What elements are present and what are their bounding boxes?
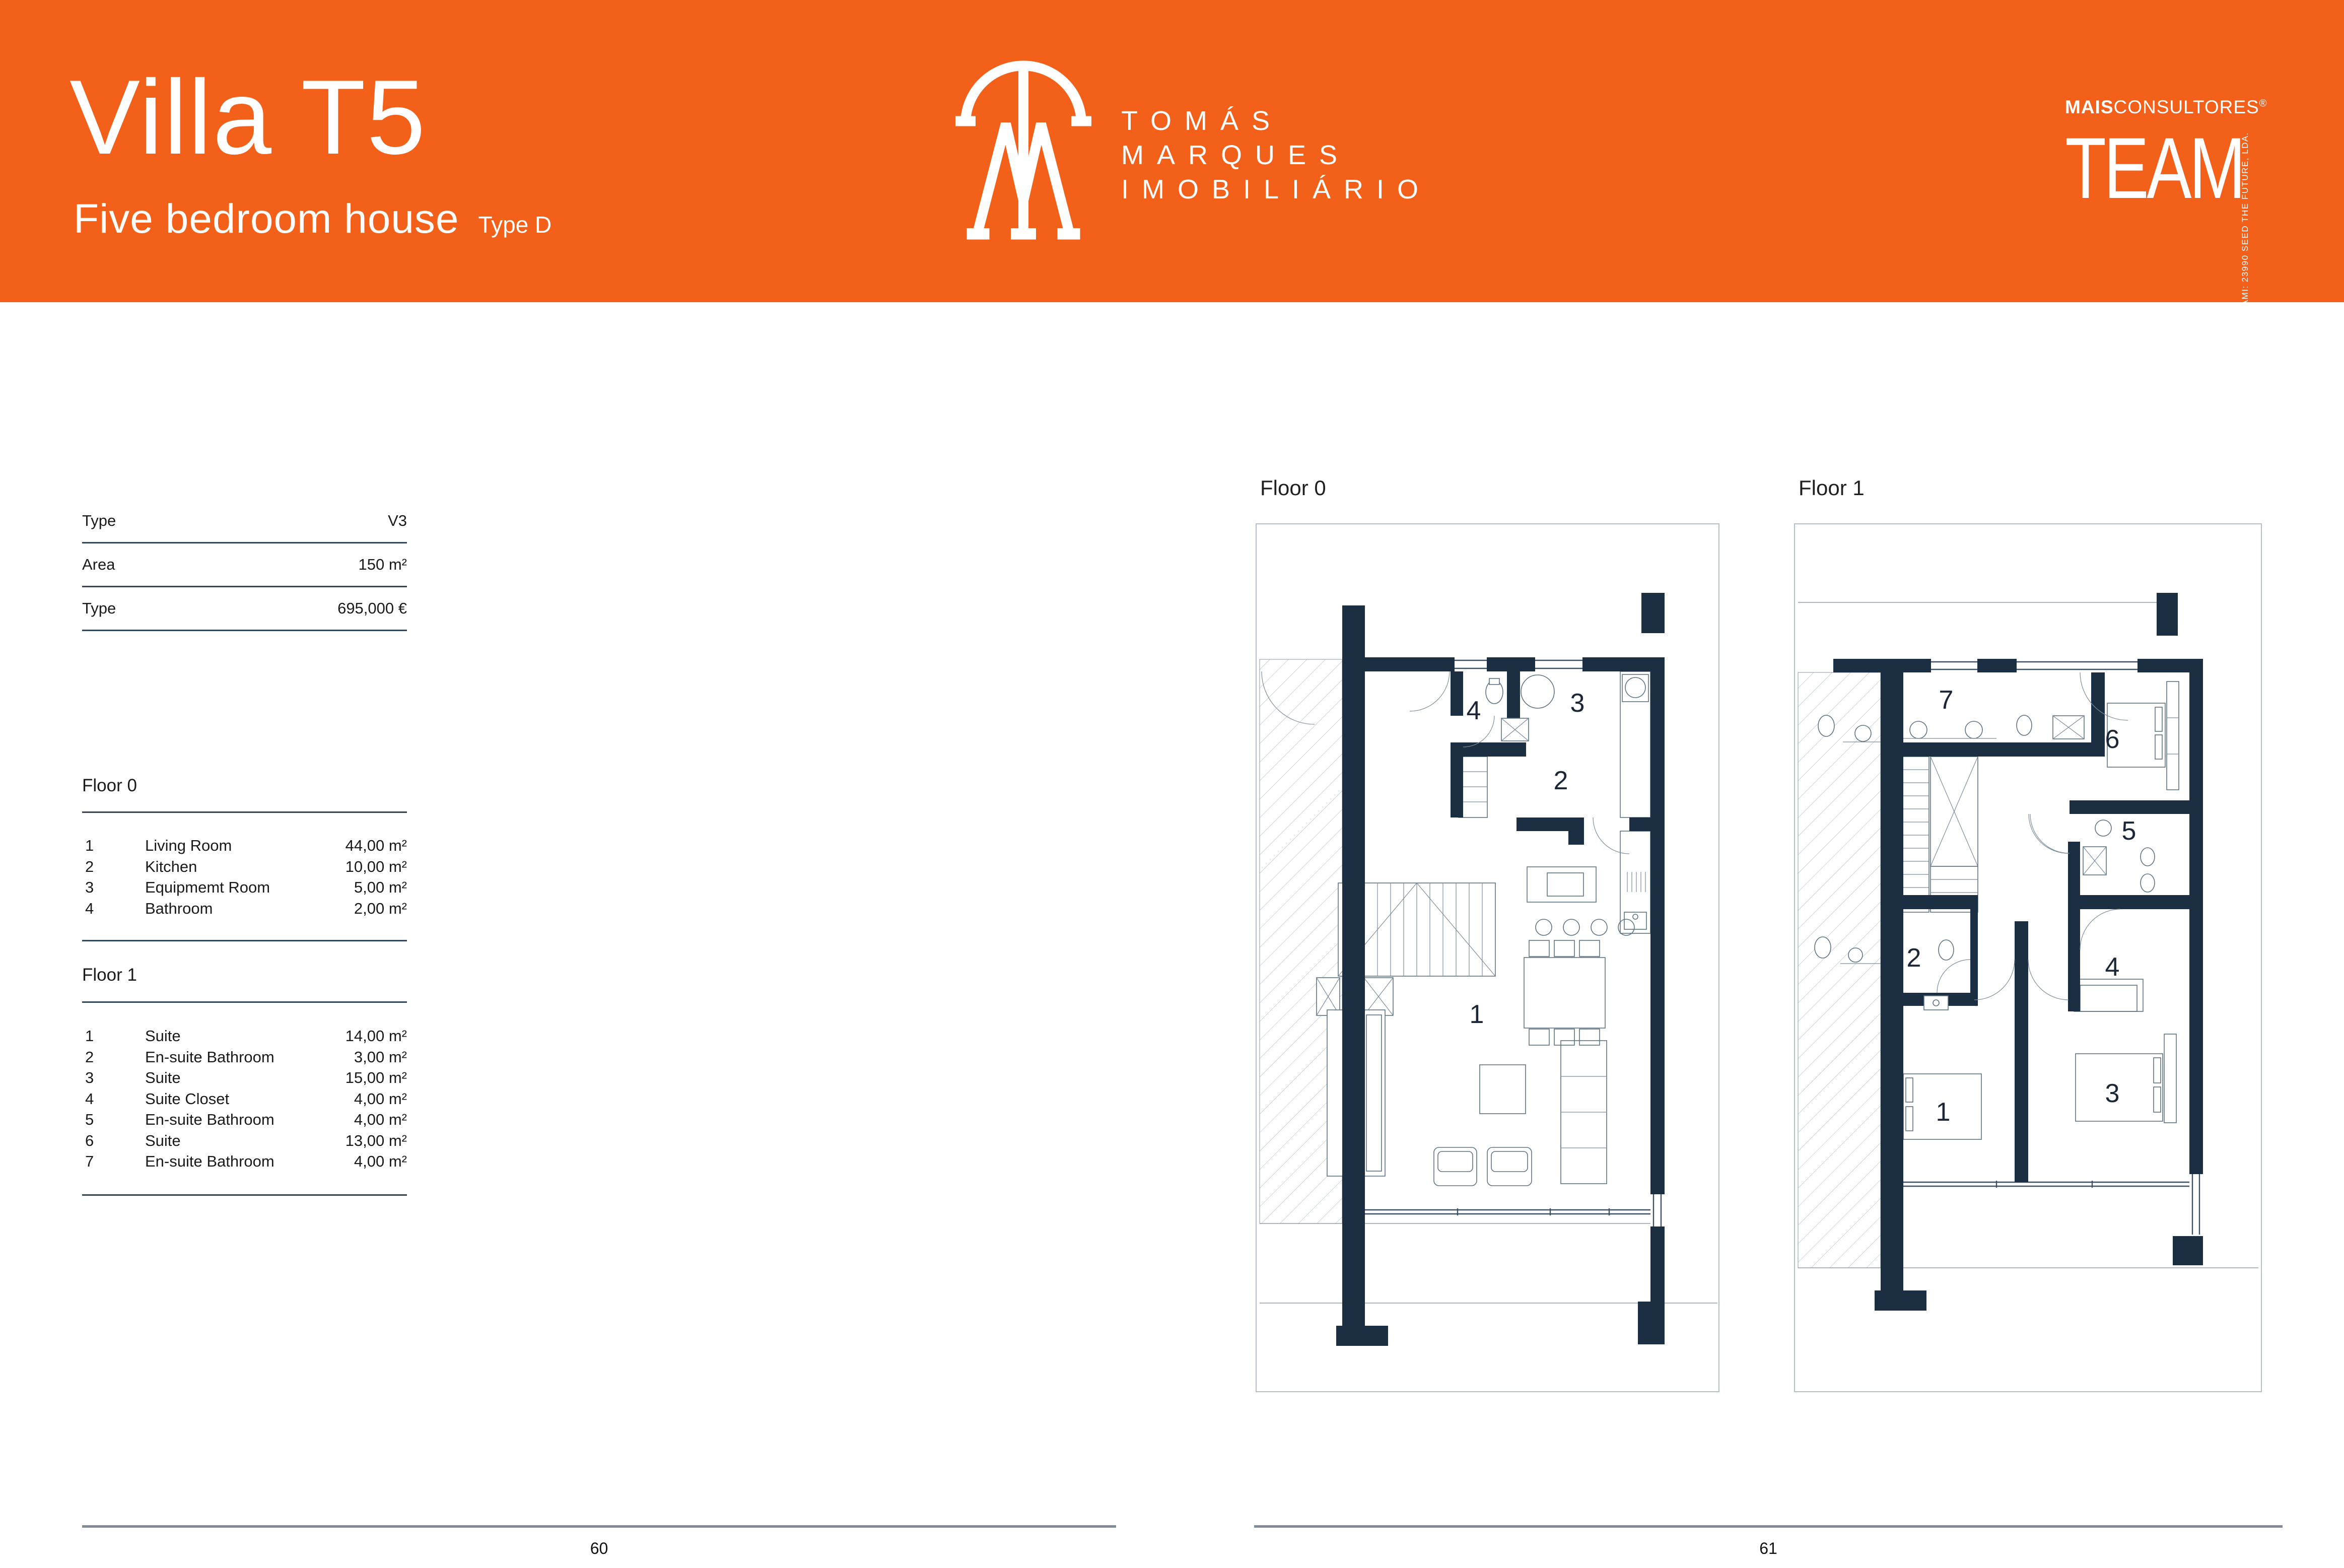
room-area: 2,00 m² (354, 898, 407, 919)
room-area: 15,00 m² (346, 1067, 407, 1088)
list-item: 1Suite14,00 m² (82, 1026, 407, 1047)
team-logo-topline: MAISCONSULTORES® (2065, 97, 2242, 118)
divider (82, 1194, 407, 1196)
floor0-plan: 1 2 3 4 (1256, 523, 1719, 1392)
room-name: En-suite Bathroom (145, 1047, 354, 1068)
plan-room-label: 4 (2105, 952, 2120, 982)
room-area: 13,00 m² (346, 1130, 407, 1151)
page-number-right: 61 (1254, 1539, 2283, 1558)
team-logo-word: TEAM (2065, 125, 2203, 212)
tm-monogram-icon (948, 44, 1099, 261)
list-item: 6Suite13,00 m² (82, 1130, 407, 1151)
plan-room-label: 2 (1554, 766, 1568, 796)
section-title-floor0: Floor 0 (82, 776, 137, 796)
section-title-floor1: Floor 1 (82, 965, 137, 985)
team-logo-side-text: AMI: 23990 SEED THE FUTURE, LDA. (2240, 132, 2250, 306)
table-row: Area 150 m² (82, 543, 407, 587)
list-item: 5En-suite Bathroom4,00 m² (82, 1109, 407, 1130)
room-name: Kitchen (145, 856, 346, 877)
floor0-plan-drawing (1257, 524, 1720, 1393)
page-title: Villa T5 (70, 64, 427, 170)
team-logo-suffix: CONSULTORES (2114, 97, 2259, 117)
subtitle-row: Five bedroom house Type D (74, 195, 551, 243)
room-name: Bathroom (145, 898, 354, 919)
list-item: 2Kitchen10,00 m² (82, 856, 407, 877)
room-name: Suite (145, 1130, 346, 1151)
list-item: 3Suite15,00 m² (82, 1067, 407, 1088)
room-name: Suite Closet (145, 1088, 354, 1110)
info-value: 150 m² (359, 556, 407, 574)
footer-rule-right (1254, 1525, 2283, 1528)
info-label: Area (82, 556, 115, 574)
plan-room-label: 5 (2122, 816, 2136, 846)
room-name: Living Room (145, 835, 346, 856)
room-area: 44,00 m² (346, 835, 407, 856)
room-area: 10,00 m² (346, 856, 407, 877)
page-number-left: 60 (82, 1539, 1116, 1558)
room-area: 4,00 m² (354, 1151, 407, 1172)
list-item: 2En-suite Bathroom3,00 m² (82, 1047, 407, 1068)
room-number: 3 (82, 1067, 145, 1088)
plan-room-label: 4 (1467, 696, 1481, 726)
brand-name-line2: MARQUES (1121, 138, 1431, 172)
floor1-plan: 1 2 3 4 5 6 7 (1794, 523, 2262, 1392)
room-name: Suite (145, 1067, 346, 1088)
brand-name-line1: TOMÁS (1121, 104, 1431, 138)
room-number: 2 (82, 856, 145, 877)
room-number: 3 (82, 877, 145, 898)
list-item: 7En-suite Bathroom4,00 m² (82, 1151, 407, 1172)
info-label: Type (82, 512, 116, 530)
room-area: 4,00 m² (354, 1109, 407, 1130)
plan-room-label: 2 (1907, 943, 1921, 973)
room-name: Suite (145, 1026, 346, 1047)
type-tag: Type D (478, 211, 552, 238)
floor1-plan-drawing (1795, 524, 2263, 1393)
brand-name-line3: IMOBILIÁRIO (1121, 172, 1431, 207)
table-row: Type 695,000 € (82, 587, 407, 631)
team-logo-prefix: MAIS (2065, 97, 2114, 117)
divider (82, 1001, 407, 1003)
plan-room-label: 3 (2105, 1078, 2120, 1109)
brand-name: TOMÁS MARQUES IMOBILIÁRIO (1121, 104, 1431, 207)
room-name: En-suite Bathroom (145, 1151, 354, 1172)
plan-room-label: 7 (1939, 685, 1954, 715)
room-number: 1 (82, 835, 145, 856)
room-number: 1 (82, 1026, 145, 1047)
divider (82, 811, 407, 813)
table-row: Type V3 (82, 500, 407, 543)
footer-rule-left (82, 1525, 1116, 1528)
room-number: 7 (82, 1151, 145, 1172)
page-subtitle: Five bedroom house (74, 195, 459, 243)
room-name: Equipmemt Room (145, 877, 354, 898)
room-number: 5 (82, 1109, 145, 1130)
room-number: 4 (82, 898, 145, 919)
header-band: Villa T5 Five bedroom house Type D TOMÁS… (0, 0, 2344, 302)
info-table: Type V3 Area 150 m² Type 695,000 € (82, 500, 407, 631)
list-item: 4Bathroom2,00 m² (82, 898, 407, 919)
team-logo: MAISCONSULTORES® TEAM AMI: 23990 SEED TH… (2065, 97, 2242, 212)
info-value: 695,000 € (337, 599, 407, 618)
plan-room-label: 1 (1936, 1097, 1951, 1127)
divider (82, 940, 407, 941)
room-area: 14,00 m² (346, 1026, 407, 1047)
room-number: 4 (82, 1088, 145, 1110)
floor1-room-list: 1Suite14,00 m² 2En-suite Bathroom3,00 m²… (82, 1026, 407, 1172)
room-number: 6 (82, 1130, 145, 1151)
brochure-page: Villa T5 Five bedroom house Type D TOMÁS… (0, 0, 2344, 1568)
plan-room-label: 1 (1470, 999, 1484, 1030)
room-name: En-suite Bathroom (145, 1109, 354, 1130)
room-number: 2 (82, 1047, 145, 1068)
list-item: 1Living Room44,00 m² (82, 835, 407, 856)
list-item: 3Equipmemt Room5,00 m² (82, 877, 407, 898)
floor0-room-list: 1Living Room44,00 m² 2Kitchen10,00 m² 3E… (82, 835, 407, 919)
plan-room-label: 3 (1570, 688, 1585, 718)
floor0-plan-title: Floor 0 (1260, 476, 1326, 500)
registered-mark-icon: ® (2259, 98, 2267, 109)
floor1-plan-title: Floor 1 (1799, 476, 1865, 500)
list-item: 4Suite Closet4,00 m² (82, 1088, 407, 1110)
info-label: Type (82, 599, 116, 618)
room-area: 3,00 m² (354, 1047, 407, 1068)
plan-room-label: 6 (2105, 724, 2120, 755)
info-value: V3 (388, 512, 407, 530)
room-area: 5,00 m² (354, 877, 407, 898)
room-area: 4,00 m² (354, 1088, 407, 1110)
